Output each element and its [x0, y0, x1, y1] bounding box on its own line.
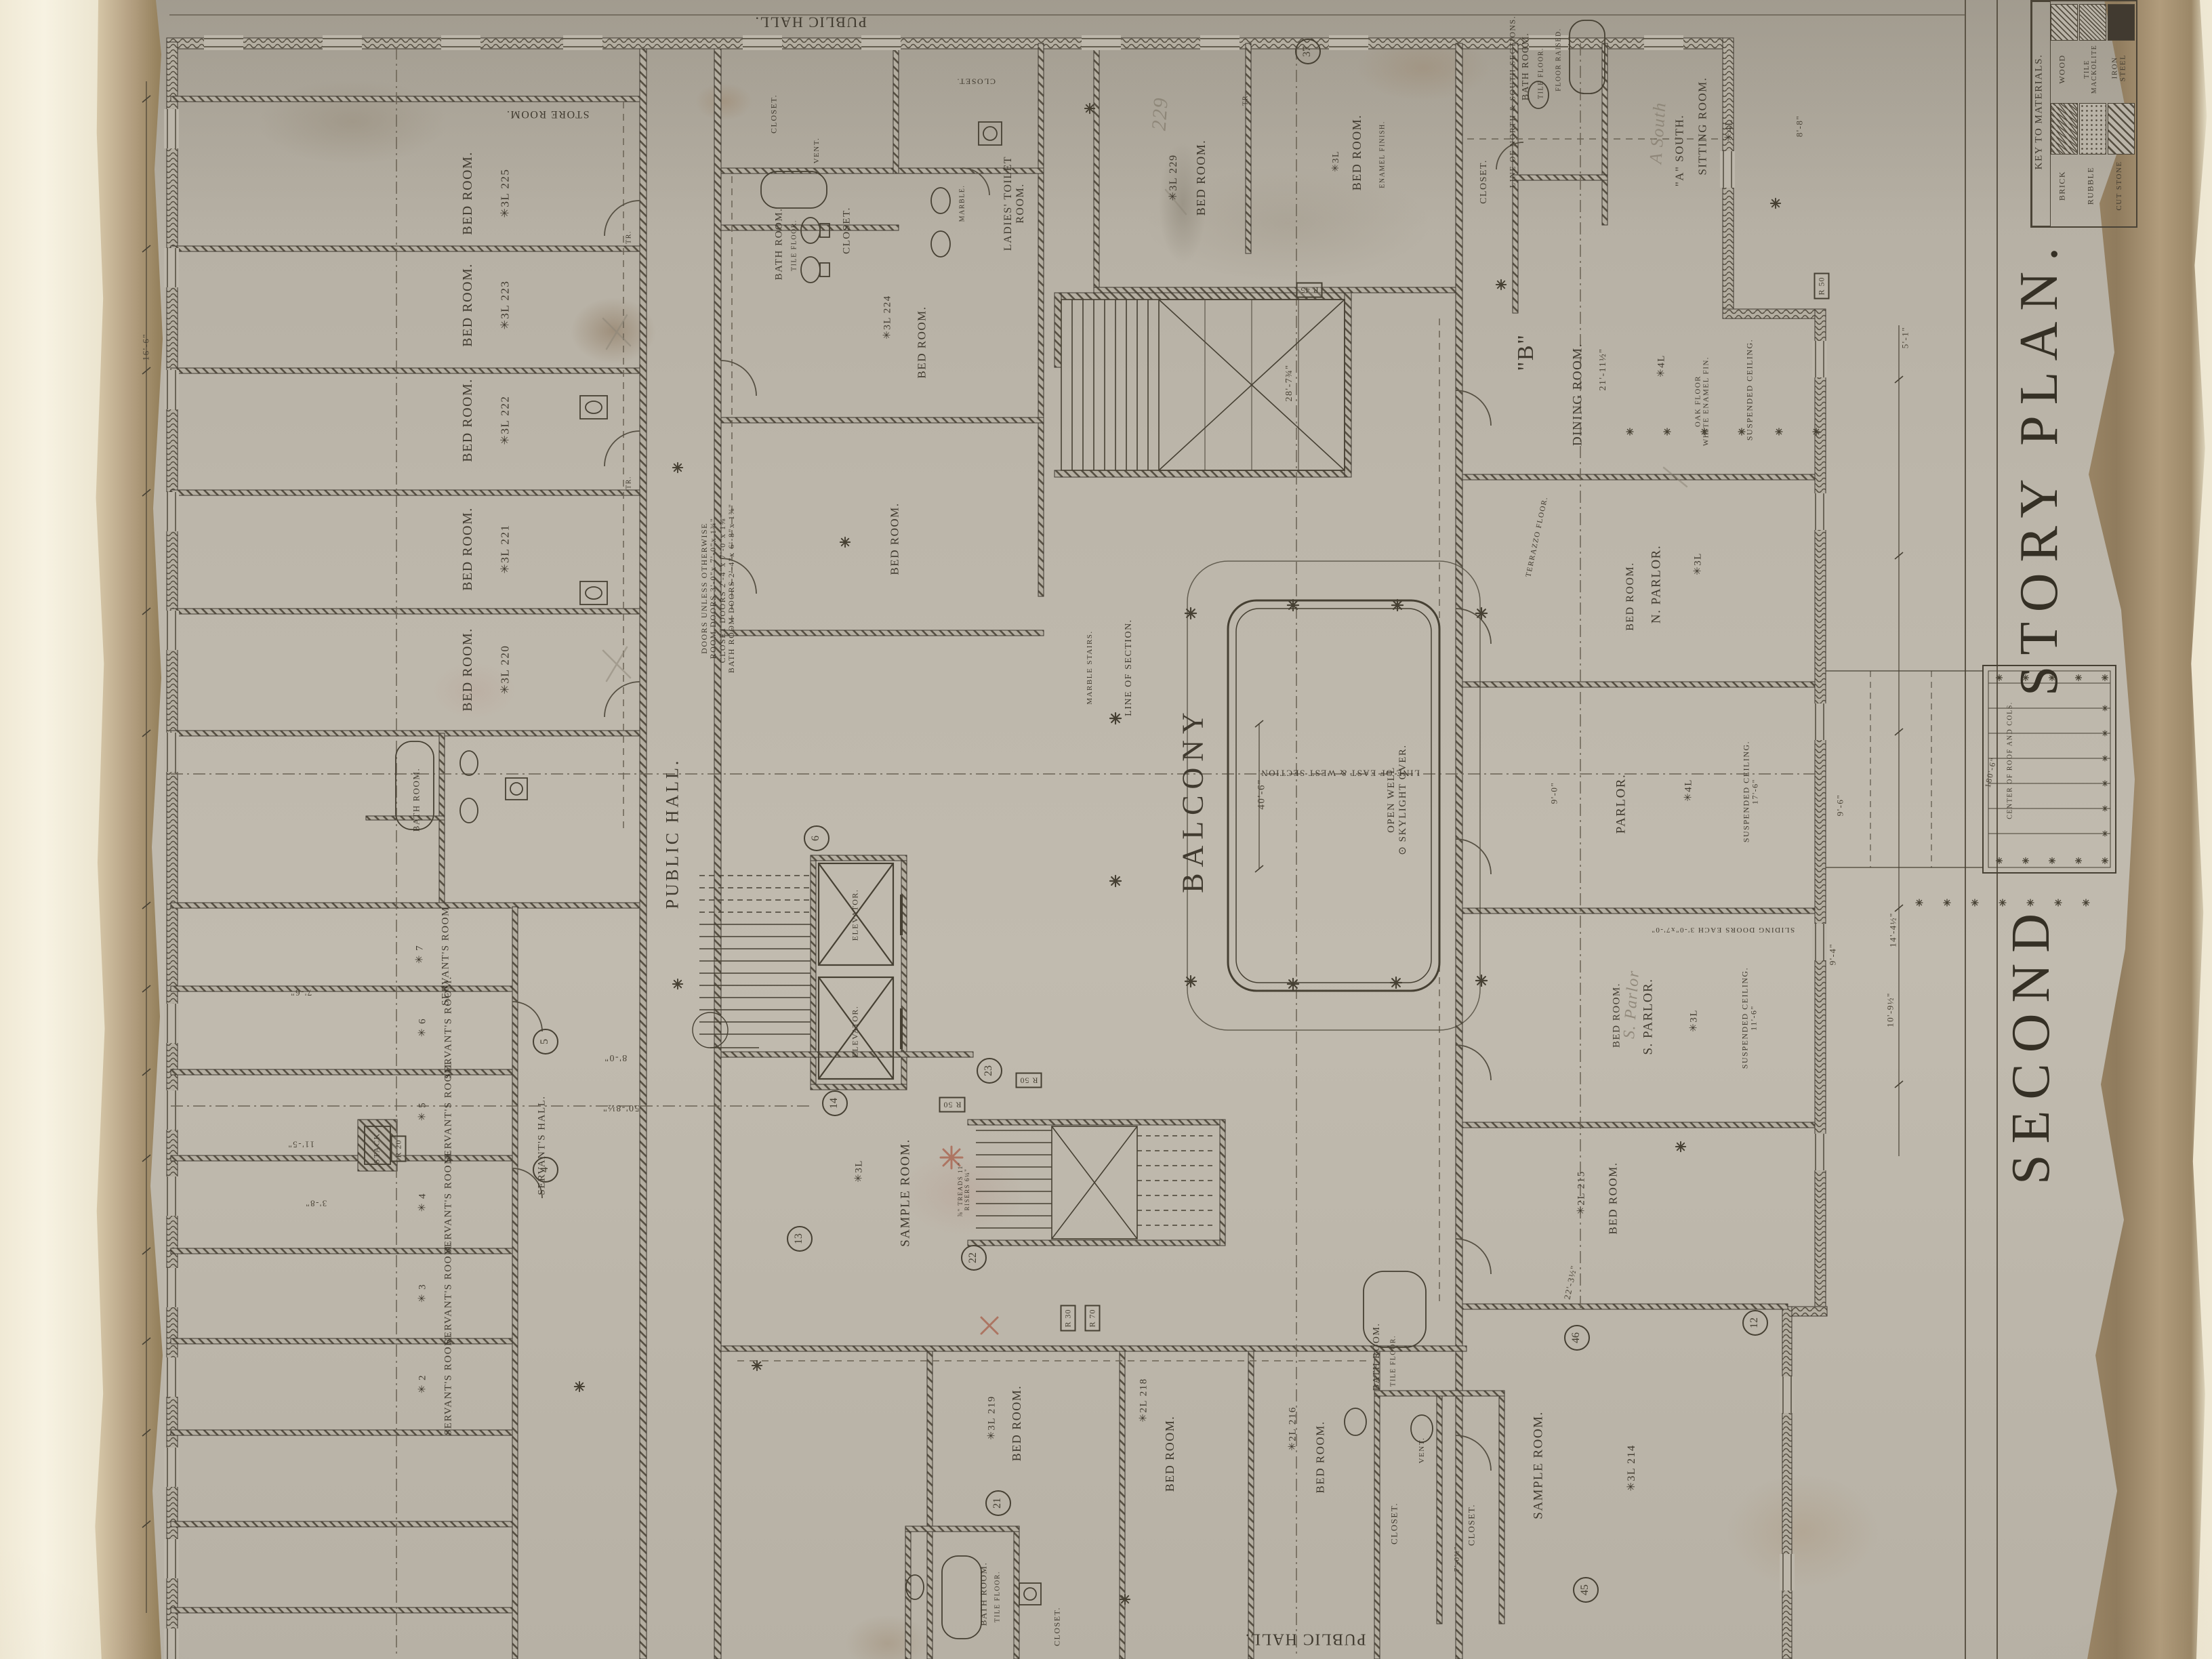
dim-9-4: 9'-4"	[1828, 943, 1839, 965]
label-closet-a: CLOSET.	[769, 94, 778, 134]
marker-12: 12	[1742, 1310, 1768, 1336]
note-tile-floor-c: TILE FLOOR.	[1389, 1335, 1397, 1387]
legend-label-iron: IRON STEEL	[2111, 54, 2128, 82]
label-public-hall-top: PUBLIC HALL.	[754, 14, 867, 30]
number-229: ✳3L 229	[1168, 154, 1180, 201]
note-door-sizes: DOORS UNLESS OTHERWISE ROOM DOORS 3'-0"x…	[700, 504, 737, 674]
number-219: ✳3L 219	[987, 1395, 998, 1439]
number-216: ✳2L 216	[1288, 1406, 1299, 1450]
legend-swatch-brick	[2051, 103, 2078, 155]
label-bed-room-221: BED ROOM.	[460, 507, 475, 591]
marker-6: 6	[804, 825, 829, 851]
marker-37: 37	[1295, 39, 1321, 64]
label-vent-b: VENT.	[1418, 1437, 1426, 1464]
label-bed-room-225: BED ROOM.	[460, 151, 475, 235]
dim-28-7: 28'-7¾"	[1284, 365, 1295, 402]
note-floor-raised: FLOOR RAISED.	[1555, 28, 1562, 91]
label-parlor: PARLOR.	[1614, 774, 1628, 834]
label-bath-room-west: BATH ROOM.	[412, 768, 422, 832]
dim-50-8: 50'-8½"	[602, 1102, 640, 1113]
code-sample-mid: ✳3L	[854, 1160, 865, 1183]
label-bath-room-a: BATH ROOM.	[774, 208, 785, 281]
label-balcony: BALCONY	[1176, 706, 1209, 893]
label-bath-room-c: BATH ROOM.	[1372, 1323, 1382, 1391]
label-bath-room-b: BATH ROOM.	[1521, 33, 1532, 101]
stair-b	[1061, 300, 1345, 470]
legend-label-tile: TILE MACKOLITE	[2083, 45, 2098, 94]
label-closet-e: CLOSET.	[1390, 1502, 1400, 1544]
elevator-shafts	[819, 863, 901, 1079]
label-stack: STACK.	[372, 1130, 381, 1164]
number-225: ✳3L 225	[498, 169, 511, 218]
label-closet-d: CLOSET.	[1479, 159, 1490, 204]
legend-swatch-rubble	[2079, 103, 2106, 155]
note-susp-11: SUSPENDED CEILING. 11'-6"	[1741, 967, 1759, 1069]
label-line-of-section: LINE OF SECTION.	[1124, 619, 1134, 716]
label-closet-g: CLOSET.	[1052, 1607, 1061, 1646]
pencil-229: 229	[1148, 96, 1173, 131]
legend-swatch-cut-stone	[2108, 103, 2135, 155]
label-closet-f: CLOSET.	[1467, 1504, 1477, 1546]
legend-label-wood: WOOD	[2057, 54, 2066, 83]
number-s6: ✳ 6	[417, 1018, 429, 1037]
label-bed-room-223: BED ROOM.	[460, 263, 475, 347]
label-line-north-south: LINE OF NORTH & SOUTH SECTIONS.	[1508, 16, 1517, 188]
number-223: ✳3L 223	[498, 281, 511, 330]
floor-plan-drawing	[0, 0, 2212, 1659]
note-tile-floor-a: TILE FLOOR.	[790, 220, 798, 271]
label-closet-c: CLOSET.	[956, 77, 996, 85]
radiator-r50-b: R 50	[939, 1097, 965, 1113]
label-sitting-room: SITTING ROOM.	[1696, 77, 1708, 175]
legend-swatch-tile	[2079, 4, 2106, 41]
star-symbols	[575, 104, 2108, 1604]
number-s7: ✳ 7	[415, 945, 426, 964]
dim-9-6: 9'-6"	[1836, 794, 1846, 816]
note-treads: ⅞" TREADS 11" RISERS 6¼"	[957, 1162, 970, 1217]
label-servants-room-3: SERVANT'S ROOM.	[443, 1242, 455, 1345]
note-marble: MARBLE.	[958, 185, 966, 222]
label-a-south: "A" SOUTH.	[1673, 115, 1685, 186]
marker-23: 23	[977, 1058, 1002, 1084]
marker-21: 21	[985, 1490, 1011, 1516]
note-susp-17: SUSPENDED CEILING. 17'-6"	[1742, 741, 1761, 842]
dim-8-8: 8'-8"	[1795, 115, 1805, 137]
label-bed-room-219: BED ROOM.	[1010, 1385, 1023, 1462]
balcony-open-well	[1187, 561, 1480, 1030]
code-bed-228: ✳3L	[1331, 150, 1342, 172]
label-ladies-toilet: LADIES' TOILET ROOM.	[1002, 156, 1027, 251]
marker-46: 46	[1564, 1325, 1590, 1351]
label-bed-room-229: BED ROOM.	[1194, 140, 1208, 216]
note-enamel-finish: ENAMEL FINISH.	[1378, 121, 1386, 188]
dim-21-11: 21'-11½"	[1598, 348, 1609, 391]
marker-14: 14	[822, 1090, 848, 1116]
note-tr-2: TR.	[625, 476, 632, 489]
number-221: ✳3L 221	[498, 525, 511, 574]
dim-9-0: 9'-0"	[1550, 782, 1560, 804]
radiator-r30: R 30	[1061, 1305, 1076, 1331]
number-s5: ✳ 5	[417, 1102, 429, 1121]
note-center-roof: CENTER OF ROOF AND COLS.	[2006, 701, 2013, 819]
note-tile-floor-b: TILE FLOOR.	[1537, 47, 1544, 99]
note-tile-floor-d: TILE FLOOR.	[994, 1571, 1001, 1622]
label-bed-room-222: BED ROOM.	[460, 378, 475, 462]
radiator-r70: R 70	[1085, 1305, 1101, 1331]
marker-22: 22	[961, 1245, 987, 1271]
label-bed-room-216: BED ROOM.	[1313, 1420, 1326, 1493]
marker-4: 4	[533, 1157, 558, 1183]
photo-of-floor-plan: KEY TO MATERIALS. WOOD TILE MACKOLITE IR…	[0, 0, 2212, 1659]
radiator-r50-c: R 50	[1814, 272, 1830, 299]
number-s3: ✳ 3	[417, 1284, 429, 1303]
label-bed-room-228: BED ROOM.	[1350, 115, 1364, 191]
label-sample-room-214: SAMPLE ROOM.	[1531, 1411, 1545, 1519]
code-n-parlor: ✳3L	[1693, 552, 1704, 575]
dim-14-4: 14'-4½"	[1889, 912, 1899, 947]
legend-label-cut-stone: CUT STONE	[2115, 161, 2123, 210]
label-bed-room-218: BED ROOM.	[1163, 1416, 1176, 1492]
label-stair-b: "B"	[1513, 334, 1539, 371]
sheet-title-story-plan: STORY PLAN.	[2009, 237, 2070, 696]
note-oak-floor: OAK FLOOR WHITE ENAMEL FIN.	[1694, 356, 1711, 446]
dim-3-8: 3'-8"	[305, 1198, 327, 1208]
legend-label-brick: BRICK	[2057, 171, 2066, 201]
radiator-r20: R 20	[391, 1135, 407, 1162]
service-stair	[693, 876, 811, 1048]
note-sliding-doors: SLIDING DOORS EACH 3'-0"x7'-0"	[1651, 926, 1795, 934]
number-222: ✳3L 222	[498, 396, 511, 445]
dimension-lines	[142, 81, 1903, 1613]
label-store-room: STORE ROOM.	[506, 108, 590, 120]
dim-10-9: 10'-9½"	[1886, 992, 1896, 1027]
stair-south	[976, 1126, 1216, 1239]
number-215: ✳2L 215	[1576, 1170, 1588, 1214]
number-218: ✳2L 218	[1139, 1378, 1150, 1422]
label-n-parlor: N. PARLOR.	[1649, 545, 1663, 623]
dim-11-5: 11'-5"	[287, 1139, 314, 1149]
label-elevator-1: ELEVATOR.	[851, 889, 859, 941]
label-bed-room-220: BED ROOM.	[460, 628, 475, 712]
label-servants-room-4: SERVANT'S ROOM.	[443, 1151, 455, 1254]
legend-label-rubble: RUBBLE	[2086, 167, 2095, 205]
dim-7-0: 7'-0½"	[1453, 1546, 1461, 1572]
radiator-r50-a: R 50	[1015, 1073, 1042, 1088]
label-elevator-2: ELEVATOR.	[851, 1006, 859, 1058]
dim-40-6: 40'-6"	[1256, 779, 1268, 809]
label-vent-a: VENT.	[813, 138, 821, 164]
number-s2: ✳ 2	[417, 1374, 429, 1393]
note-tr-3: TR.	[1242, 92, 1249, 106]
label-open-well: OPEN WELL ⊙ SKYLIGHT OVER.	[1386, 744, 1409, 855]
label-bed-room-215: BED ROOM.	[1606, 1162, 1619, 1234]
legend-title: KEY TO MATERIALS.	[2034, 54, 2045, 170]
number-s4: ✳ 4	[417, 1193, 429, 1212]
porch-column-grid	[1826, 665, 2116, 873]
dim-8-0: 8'-0"	[604, 1052, 627, 1063]
label-public-hall-left: PUBLIC HALL.	[662, 758, 682, 909]
dim-5-1: 5'-1"	[1901, 327, 1911, 348]
number-220: ✳3L 220	[498, 645, 511, 695]
dim-16-6: 16'-6"	[142, 333, 152, 361]
marker-45: 45	[1573, 1577, 1599, 1603]
marker-5: 5	[533, 1029, 558, 1054]
number-224: ✳3L 224	[882, 295, 894, 339]
label-dining-room: DINING ROOM.	[1570, 343, 1584, 446]
marker-13: 13	[787, 1226, 813, 1252]
label-sample-room-mid: SAMPLE ROOM.	[898, 1139, 912, 1246]
dim-7-6: 7'-6"	[290, 987, 312, 998]
note-tr-1: TR.	[625, 230, 632, 244]
label-line-east-west: LINE OF EAST & WEST SECTION.	[1257, 768, 1420, 778]
label-bed-room-nparlor: BED ROOM.	[1624, 562, 1637, 631]
radiator-r45: R 45	[1296, 283, 1322, 298]
legend-swatch-wood	[2051, 4, 2078, 41]
label-bed-room-inner: BED ROOM.	[888, 502, 901, 575]
sheet-title-second: SECOND	[2001, 903, 2062, 1185]
label-servants-room-2: SERVANT'S ROOM.	[443, 1332, 455, 1435]
code-sitting: ✳4L	[1724, 119, 1736, 142]
label-servants-room-5: SERVANT'S ROOM.	[443, 1060, 455, 1163]
code-dining: ✳4L	[1656, 354, 1668, 377]
label-bed-room-224: BED ROOM.	[915, 306, 928, 378]
number-214: ✳3L 214	[1626, 1444, 1638, 1491]
label-marble-stairs: MARBLE STAIRS.	[1086, 630, 1094, 704]
code-parlor: ✳4L	[1683, 779, 1695, 802]
label-closet-b: CLOSET.	[842, 207, 853, 254]
code-s-parlor: ✳3L	[1689, 1009, 1700, 1032]
note-susp-ceiling: SUSPENDED CEILING.	[1745, 339, 1754, 441]
label-bath-room-d: BATH ROOM.	[979, 1562, 989, 1626]
label-s-parlor: S. PARLOR.	[1641, 978, 1655, 1054]
label-public-hall-bottom: PUBLIC HALL.	[1244, 1630, 1366, 1648]
legend-swatch-iron	[2108, 4, 2135, 41]
